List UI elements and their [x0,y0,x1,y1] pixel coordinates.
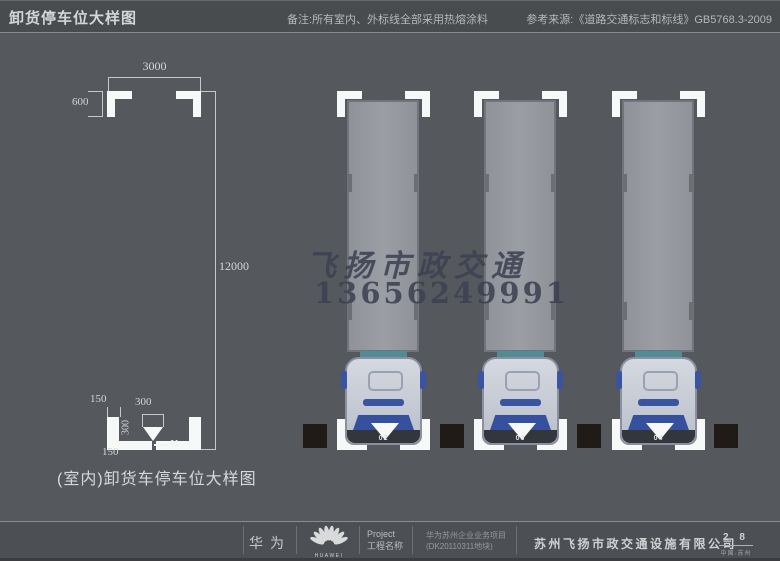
wheel-notch [623,174,627,192]
drawing-canvas: 3000 600 12000 150 300 300 01 150 (室内)卸货… [0,33,780,521]
mirror-left [616,371,622,389]
pillar-block [577,424,601,448]
page-number: 2 8 [719,532,753,546]
stall-number: 04 [622,435,695,442]
wheel-notch [551,174,555,192]
dim-tick [142,414,164,415]
wheel-notch [485,302,489,320]
mirror-right [557,371,563,389]
roof-stripe [500,399,541,406]
company-name: 苏州飞扬市政交通设施有限公司 [534,535,737,552]
dim-label-150-top: 150 [90,393,107,405]
huawei-logo-icon [309,525,349,548]
wheel-notch [485,174,489,192]
sunroof [368,371,403,391]
mirror-right [420,371,426,389]
sunroof [505,371,540,391]
drawing-sheet: 卸货停车位大样图 备注:所有室内、外标线全部采用热熔涂料 参考来源:《道路交通标… [0,0,780,561]
truck-trailer [484,100,556,352]
wheel-notch [551,302,555,320]
wheel-notch [689,174,693,192]
dim-line-length [215,91,216,450]
project-name-line1: 华为苏州企业业务项目 [426,530,506,541]
corner-marking-top-right [176,91,201,117]
stall-01-label: 01 [170,439,179,448]
truck-cab: 02 [345,357,422,445]
dim-tick [201,449,215,450]
header-reference: 参考来源:《道路交通标志和标线》GB5768.3-2009 [526,11,772,27]
mirror-left [341,371,347,389]
logo-word: HUAWEI [301,553,357,559]
wheel-notch [414,174,418,192]
roof-stripe [363,399,404,406]
page-number-block: 2 8 中国·苏州 [711,527,761,557]
pillar-block [440,424,464,448]
location-label: 中国·苏州 [711,548,761,557]
brand-name: 华为 [244,533,296,553]
project-label-en: Project [367,528,403,540]
wheel-notch [348,174,352,192]
project-name-line2: (DK20110311地块) [426,541,506,552]
drawing-caption: (室内)卸货车停车位大样图 [57,465,257,489]
huawei-logo: HUAWEI [301,525,357,559]
sunroof [643,371,678,391]
mirror-left [478,371,484,389]
wheel-notch [414,302,418,320]
wheel-notch [623,302,627,320]
stall-number: 03 [484,435,557,442]
header-bar: 卸货停车位大样图 备注:所有室内、外标线全部采用热熔涂料 参考来源:《道路交通标… [0,0,780,33]
dim-label-width: 3000 [108,59,201,74]
parking-stall: 02 [337,91,430,450]
dim-label-300-marker: 300 [135,396,152,408]
divider [412,526,413,554]
dim-tick [88,116,102,117]
dim-tick [142,414,143,427]
dim-tick [201,91,215,92]
dim-label-600-top: 600 [72,96,89,108]
marker-triangle-icon [143,427,163,441]
project-name: 华为苏州企业业务项目 (DK20110311地块) [426,530,506,552]
dim-tick [163,414,164,427]
truck-cab: 04 [620,357,697,445]
project-label-zh: 工程名称 [367,540,403,552]
page-title: 卸货停车位大样图 [9,7,137,28]
title-block: 华为 HUAWEI Project 工程名称 华为苏州企 [0,521,780,561]
dim-line-width [108,77,201,78]
project-label: Project 工程名称 [367,528,403,552]
dim-tick [88,91,102,92]
dim-label-length: 12000 [219,259,249,274]
divider [516,526,517,554]
roof-stripe [638,399,679,406]
truck-trailer [347,100,419,352]
divider [359,526,360,554]
parking-stall: 03 [474,91,567,450]
dim-label-150-bottom: 150 [102,446,119,458]
dim-ext-left [108,77,109,92]
dim-tick [107,407,108,417]
wheel-notch [348,302,352,320]
stall-number: 02 [347,435,420,442]
stall-01-tick [154,444,168,446]
wheel-notch [689,302,693,320]
dim-ext-right [200,77,201,92]
parking-stall: 04 [612,91,705,450]
truck-trailer [622,100,694,352]
truck-cab: 03 [482,357,559,445]
dim-label-300-side: 300 [121,414,132,442]
header-note: 备注:所有室内、外标线全部采用热熔涂料 [287,11,488,27]
corner-marking-top-left [107,91,132,117]
mirror-right [695,371,701,389]
dim-line-600 [102,91,103,117]
pillar-block [303,424,327,448]
pillar-block [714,424,738,448]
divider [296,526,297,554]
